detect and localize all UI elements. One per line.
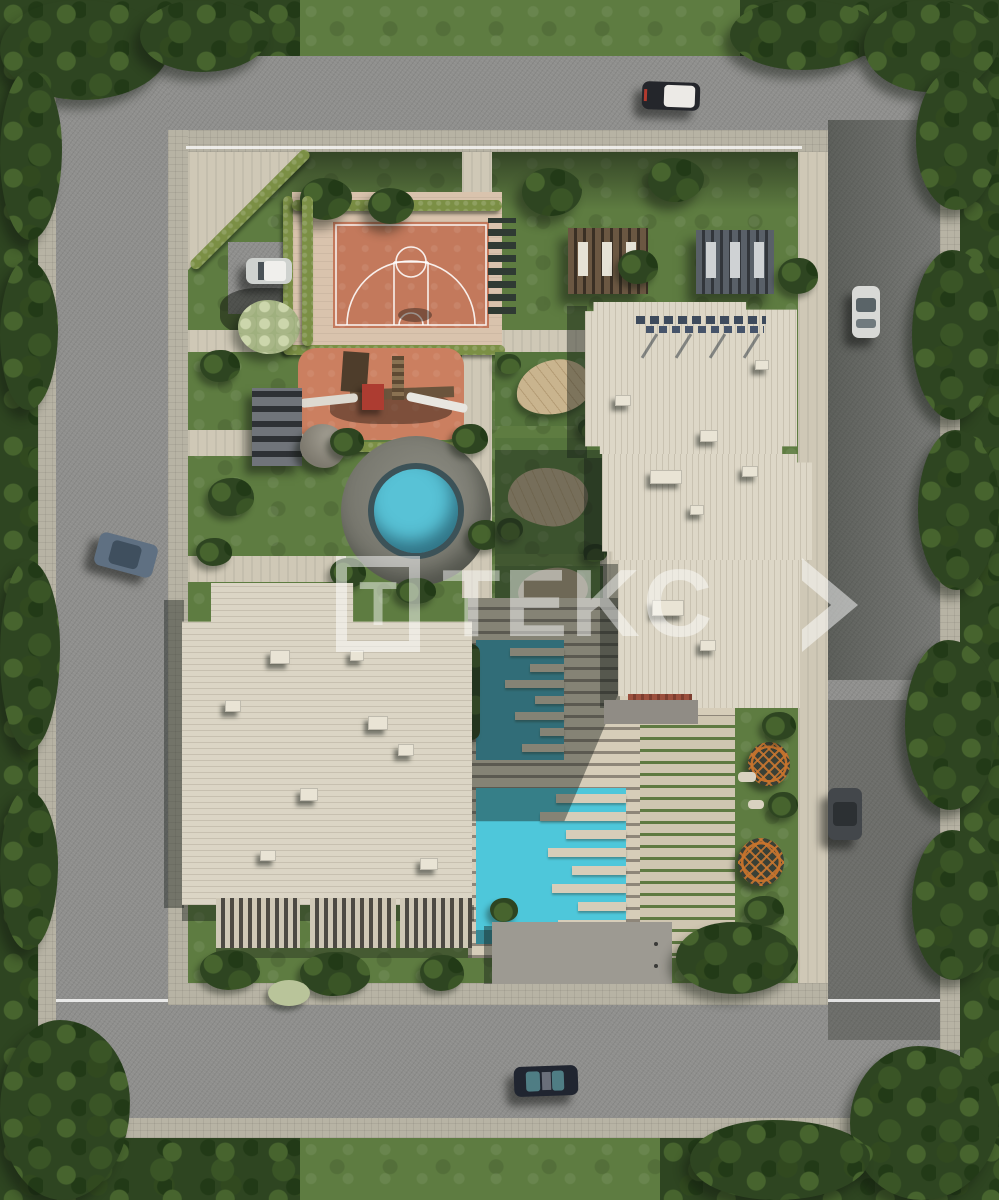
terrace-pergola-1 (216, 898, 300, 948)
dome-climber-2 (738, 838, 784, 886)
bottom-garden-bush (200, 950, 260, 990)
play-structure-ladder (392, 356, 404, 400)
deck-finger (572, 866, 626, 875)
right-garden-bush (744, 896, 784, 926)
roof-vent (270, 650, 290, 664)
roof-vent (755, 360, 769, 370)
car-roof (664, 85, 696, 108)
lounger (578, 242, 588, 276)
roof-vent (615, 395, 631, 406)
roof-vent (398, 744, 414, 756)
building-a-shadow (567, 306, 587, 458)
deck-finger (578, 902, 626, 911)
stepping-stone (738, 772, 756, 782)
garden-bush (497, 354, 521, 374)
hedge-parking-right (302, 196, 313, 346)
right-garden-bush (762, 712, 796, 740)
pool-bush (490, 898, 518, 922)
lounger (706, 242, 716, 278)
deck-finger (548, 848, 626, 857)
roof-vent (300, 788, 318, 801)
rooftop-solar-row (636, 316, 766, 324)
stepping-stone (748, 800, 764, 809)
watermark-arrow-icon (802, 558, 858, 652)
terrace-pergola-3 (400, 898, 472, 948)
deck-finger (552, 884, 626, 893)
watermark-logo-letter: T (359, 569, 397, 640)
plaza-shrub (452, 424, 488, 454)
car-top-road (642, 81, 701, 111)
pergola-grey (696, 230, 774, 294)
lounger (730, 242, 740, 278)
right-garden-bush (768, 792, 798, 818)
car-taillight (644, 89, 647, 101)
roof-vent (700, 430, 718, 442)
watermark-text: TEKC (442, 556, 715, 652)
bottom-flower-bush (268, 980, 310, 1006)
roof-vent (368, 716, 388, 730)
green-top-middle (300, 0, 740, 56)
lawn-bush (196, 538, 232, 566)
flowering-tree (238, 300, 300, 354)
car-glass (552, 1070, 565, 1090)
garage-roof-fixture (654, 942, 658, 946)
terrace-pergola-2 (310, 898, 396, 948)
watermark: T TEKC (336, 544, 896, 664)
grey-apron (604, 700, 698, 724)
car-glass (526, 1071, 541, 1091)
car-roof (264, 261, 286, 281)
lawn-bush (208, 478, 254, 516)
aerial-site-render: T TEKC (0, 0, 999, 1200)
garage-roof (492, 922, 672, 984)
deck-finger (566, 830, 626, 839)
car-bottom-road (513, 1065, 578, 1097)
building-left-shadow-side (164, 600, 184, 908)
green-bottom-middle (300, 1138, 660, 1200)
bottom-garden-bush (300, 952, 370, 996)
roof-vent (742, 466, 758, 477)
roof-vent (650, 470, 682, 484)
car-glass (856, 298, 876, 312)
bottom-garden-bush (420, 955, 464, 991)
round-pool (374, 469, 458, 553)
rooftop-solar-row-2 (646, 326, 764, 333)
lawn-bush (618, 250, 658, 284)
plaza-shrub (330, 428, 364, 456)
roof-vent (690, 505, 704, 515)
building-top-right (585, 302, 797, 454)
basketball-court-markings (333, 222, 489, 328)
roof-vent (225, 700, 241, 712)
car-glass (856, 319, 876, 328)
lounger (602, 242, 612, 276)
roof-vent (260, 850, 276, 861)
sun-loungers-court (488, 218, 516, 314)
car-glass (258, 262, 264, 280)
car-roof (542, 1072, 552, 1090)
car-right-road-upper (852, 286, 880, 338)
watermark-logo: T (336, 556, 420, 652)
slatted-shelter (252, 388, 302, 466)
lounger (754, 242, 764, 278)
lawn-bush (200, 350, 240, 382)
perimeter-wall-top (186, 146, 802, 149)
car-parked-compound (246, 258, 292, 284)
garage-roof-fixture (654, 964, 658, 968)
basketball-court (333, 222, 489, 328)
car-right-road-lower (828, 788, 862, 840)
lawn-bush (778, 258, 818, 294)
car-glass (833, 802, 857, 826)
play-structure-red-cube (362, 384, 384, 410)
car-glass (107, 539, 142, 570)
roof-vent (420, 858, 438, 870)
